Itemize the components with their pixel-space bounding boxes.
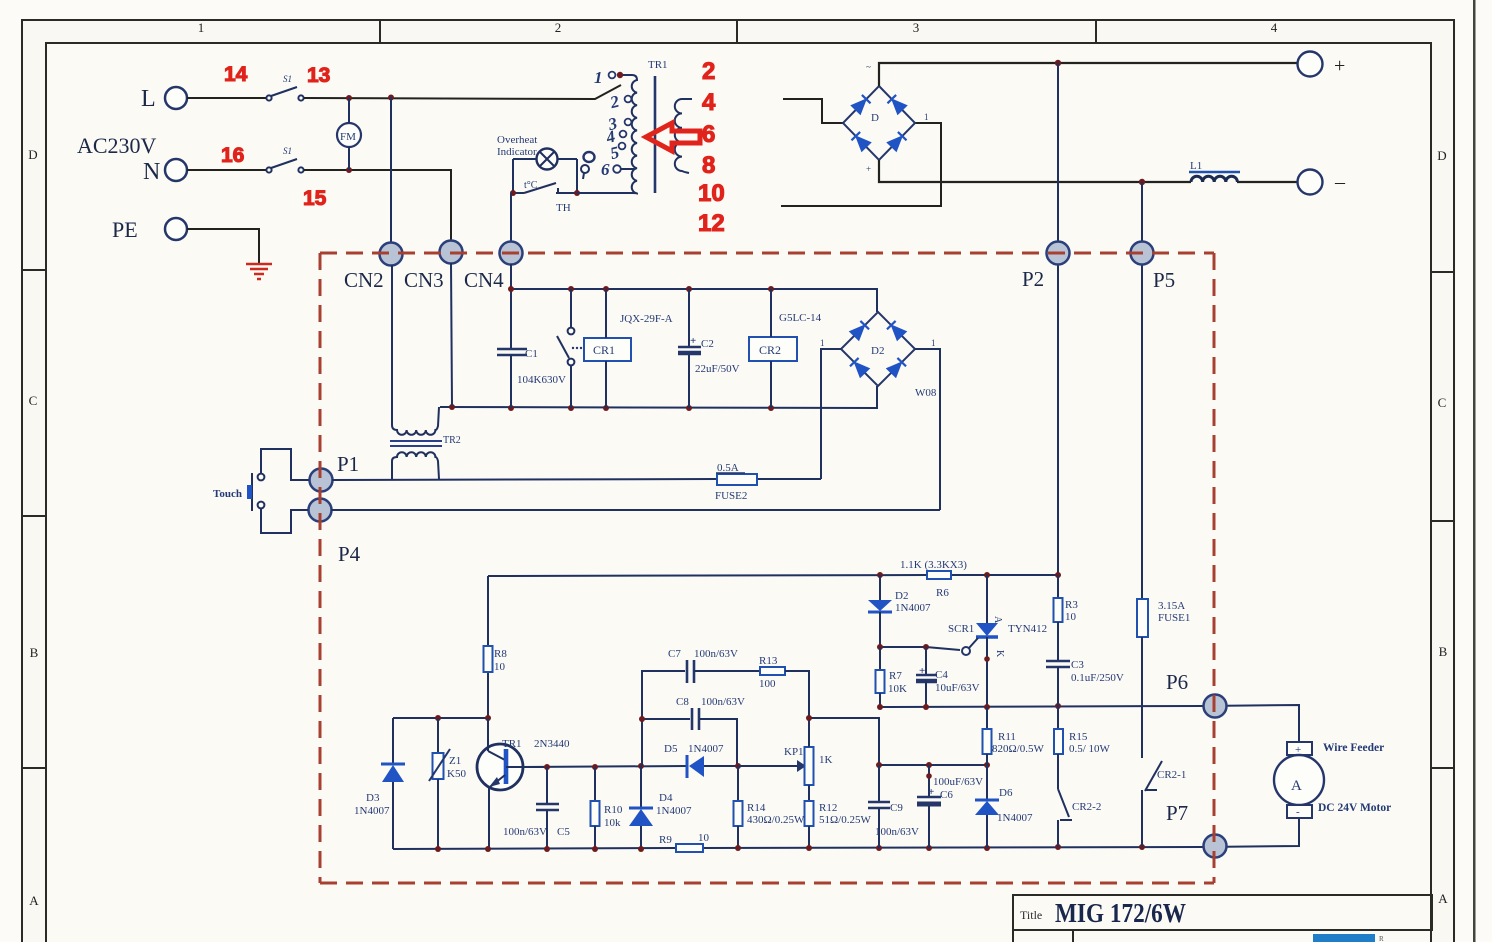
svg-text:TR1: TR1 (502, 738, 522, 750)
svg-text:CN2: CN2 (344, 268, 384, 292)
svg-text:R8: R8 (494, 648, 507, 660)
svg-text:-: - (1296, 806, 1300, 818)
svg-text:10: 10 (494, 661, 506, 673)
svg-text:C5: C5 (557, 826, 570, 838)
svg-text:C: C (1438, 395, 1447, 410)
svg-text:1: 1 (198, 20, 205, 35)
svg-text:K50: K50 (447, 768, 466, 780)
svg-text:R7: R7 (889, 670, 902, 682)
svg-text:R3: R3 (1065, 599, 1078, 611)
svg-text:A: A (1291, 778, 1302, 794)
svg-text:100n/63V: 100n/63V (503, 826, 547, 838)
svg-text:0.1uF/250V: 0.1uF/250V (1071, 672, 1124, 684)
svg-text:G5LC-14: G5LC-14 (779, 312, 822, 324)
svg-text:100n/63V: 100n/63V (875, 826, 919, 838)
svg-text:D: D (871, 112, 879, 124)
svg-text:t°C: t°C (524, 180, 538, 191)
svg-text:P4: P4 (338, 542, 361, 566)
svg-text:3: 3 (913, 20, 920, 35)
svg-text:2N3440: 2N3440 (534, 738, 570, 750)
svg-text:D4: D4 (659, 792, 673, 804)
svg-text:C7: C7 (668, 648, 681, 660)
svg-text:1: 1 (931, 338, 936, 348)
svg-text:C: C (29, 393, 38, 408)
svg-text:AC230V: AC230V (77, 133, 157, 158)
svg-text:C8: C8 (676, 696, 689, 708)
svg-text:A: A (1438, 891, 1448, 906)
svg-text:1: 1 (594, 68, 603, 87)
svg-text:KP1: KP1 (784, 746, 804, 758)
svg-text:R11: R11 (998, 731, 1016, 743)
svg-text:R: R (1379, 935, 1384, 942)
svg-text:R6: R6 (936, 587, 949, 599)
svg-text:15: 15 (303, 187, 327, 210)
svg-text:TR2: TR2 (443, 435, 461, 446)
svg-text:D6: D6 (999, 787, 1013, 799)
svg-text:CR1: CR1 (593, 343, 615, 357)
svg-text:R9: R9 (659, 834, 672, 846)
svg-text:N: N (143, 159, 160, 185)
svg-text:B: B (1439, 644, 1448, 659)
svg-text:+: + (690, 335, 696, 347)
svg-text:S1: S1 (283, 74, 292, 84)
svg-text:C6: C6 (940, 789, 953, 801)
svg-text:1N4007: 1N4007 (354, 805, 390, 817)
svg-text:~: ~ (866, 62, 871, 72)
svg-text:10: 10 (1065, 611, 1077, 623)
svg-text:6: 6 (702, 121, 715, 148)
svg-text:CR2: CR2 (759, 343, 781, 357)
svg-text:A: A (992, 616, 1003, 624)
svg-text:C2: C2 (701, 338, 714, 350)
svg-text:C1: C1 (525, 348, 538, 360)
svg-text:+: + (919, 665, 925, 677)
svg-text:C4: C4 (935, 669, 948, 681)
svg-text:D: D (28, 147, 37, 162)
svg-text:10: 10 (698, 832, 710, 844)
svg-text:–: – (1334, 171, 1346, 193)
svg-text:D2: D2 (871, 345, 884, 357)
svg-text:P5: P5 (1153, 268, 1175, 292)
svg-text:R14: R14 (747, 802, 766, 814)
svg-text:10K: 10K (888, 683, 907, 695)
svg-text:100n/63V: 100n/63V (701, 696, 745, 708)
svg-text:1K: 1K (819, 754, 833, 766)
svg-text:12: 12 (698, 210, 725, 237)
svg-text:D: D (1437, 148, 1446, 163)
svg-text:FUSE2: FUSE2 (715, 490, 747, 502)
svg-text:1: 1 (820, 338, 825, 348)
svg-text:3.15A: 3.15A (1158, 600, 1185, 612)
svg-text:R10: R10 (604, 804, 623, 816)
svg-text:51Ω/0.25W: 51Ω/0.25W (819, 814, 871, 826)
svg-text:100: 100 (759, 678, 776, 690)
svg-text:MIG 172/6W: MIG 172/6W (1055, 898, 1186, 928)
svg-text:TH: TH (556, 202, 571, 214)
svg-text:14: 14 (224, 63, 248, 86)
svg-text:+: + (866, 164, 871, 174)
svg-text:D3: D3 (366, 792, 380, 804)
svg-text:Z1: Z1 (449, 755, 461, 767)
svg-text:CR2-2: CR2-2 (1072, 801, 1101, 813)
svg-text:430Ω/0.25W: 430Ω/0.25W (747, 814, 805, 826)
svg-text:0.5/ 10W: 0.5/ 10W (1069, 743, 1111, 755)
svg-text:K: K (994, 650, 1005, 658)
svg-text:W08: W08 (915, 387, 937, 399)
svg-text:1: 1 (924, 112, 929, 122)
svg-text:DC 24V Motor: DC 24V Motor (1318, 802, 1391, 814)
svg-text:22uF/50V: 22uF/50V (695, 363, 740, 375)
svg-text:6: 6 (601, 160, 610, 179)
svg-text:1N4007: 1N4007 (895, 602, 931, 614)
svg-text:100n/63V: 100n/63V (694, 648, 738, 660)
svg-text:Indicator: Indicator (497, 146, 537, 158)
svg-text:10: 10 (698, 180, 725, 207)
svg-text:4: 4 (702, 89, 716, 116)
svg-text:Overheat: Overheat (497, 134, 537, 146)
svg-text:100uF/63V: 100uF/63V (933, 776, 983, 788)
svg-text:2: 2 (555, 20, 562, 35)
svg-text:C3: C3 (1071, 659, 1084, 671)
svg-text:B: B (30, 645, 39, 660)
svg-text:CN4: CN4 (464, 268, 504, 292)
svg-text:CN3: CN3 (404, 268, 444, 292)
svg-text:P7: P7 (1166, 801, 1188, 825)
svg-text:104K630V: 104K630V (517, 374, 566, 386)
svg-text:JQX-29F-A: JQX-29F-A (620, 313, 673, 325)
svg-text:D5: D5 (664, 743, 678, 755)
svg-text:13: 13 (307, 64, 330, 87)
svg-text:4: 4 (1271, 20, 1278, 35)
svg-text:10k: 10k (604, 817, 621, 829)
svg-text:1N4007: 1N4007 (656, 805, 692, 817)
svg-text:8: 8 (702, 152, 715, 179)
svg-text:TR1: TR1 (648, 59, 668, 71)
svg-text:P1: P1 (337, 452, 359, 476)
svg-text:CR2-1: CR2-1 (1157, 769, 1186, 781)
svg-text:C9: C9 (890, 802, 903, 814)
svg-text:PE: PE (112, 217, 138, 242)
svg-text:FUSE1: FUSE1 (1158, 612, 1190, 624)
svg-text:D2: D2 (895, 590, 908, 602)
svg-text:10uF/63V: 10uF/63V (935, 682, 980, 694)
svg-text:R12: R12 (819, 802, 837, 814)
svg-text:Title: Title (1020, 908, 1042, 922)
svg-text:P2: P2 (1022, 267, 1044, 291)
svg-text:0.5A: 0.5A (717, 462, 739, 474)
svg-text:R13: R13 (759, 655, 778, 667)
svg-text:P6: P6 (1166, 670, 1188, 694)
svg-text:A: A (29, 893, 39, 908)
svg-text:1.1K (3.3KX3): 1.1K (3.3KX3) (900, 559, 967, 571)
svg-text:S1: S1 (283, 146, 292, 156)
svg-text:2: 2 (702, 58, 715, 85)
svg-text:Touch: Touch (213, 488, 242, 500)
svg-text:Wire Feeder: Wire Feeder (1323, 742, 1384, 754)
svg-text:R15: R15 (1069, 731, 1088, 743)
svg-text:1N4007: 1N4007 (997, 812, 1033, 824)
svg-text:16: 16 (221, 144, 244, 167)
svg-text:820Ω/0.5W: 820Ω/0.5W (992, 743, 1044, 755)
svg-text:+: + (1334, 55, 1345, 77)
svg-text:L1: L1 (1190, 160, 1202, 172)
svg-text:SCR1: SCR1 (948, 623, 974, 635)
svg-text:1N4007: 1N4007 (688, 743, 724, 755)
svg-text:TYN412: TYN412 (1008, 623, 1047, 635)
svg-text:FM: FM (340, 131, 356, 143)
svg-text:L: L (141, 86, 156, 112)
